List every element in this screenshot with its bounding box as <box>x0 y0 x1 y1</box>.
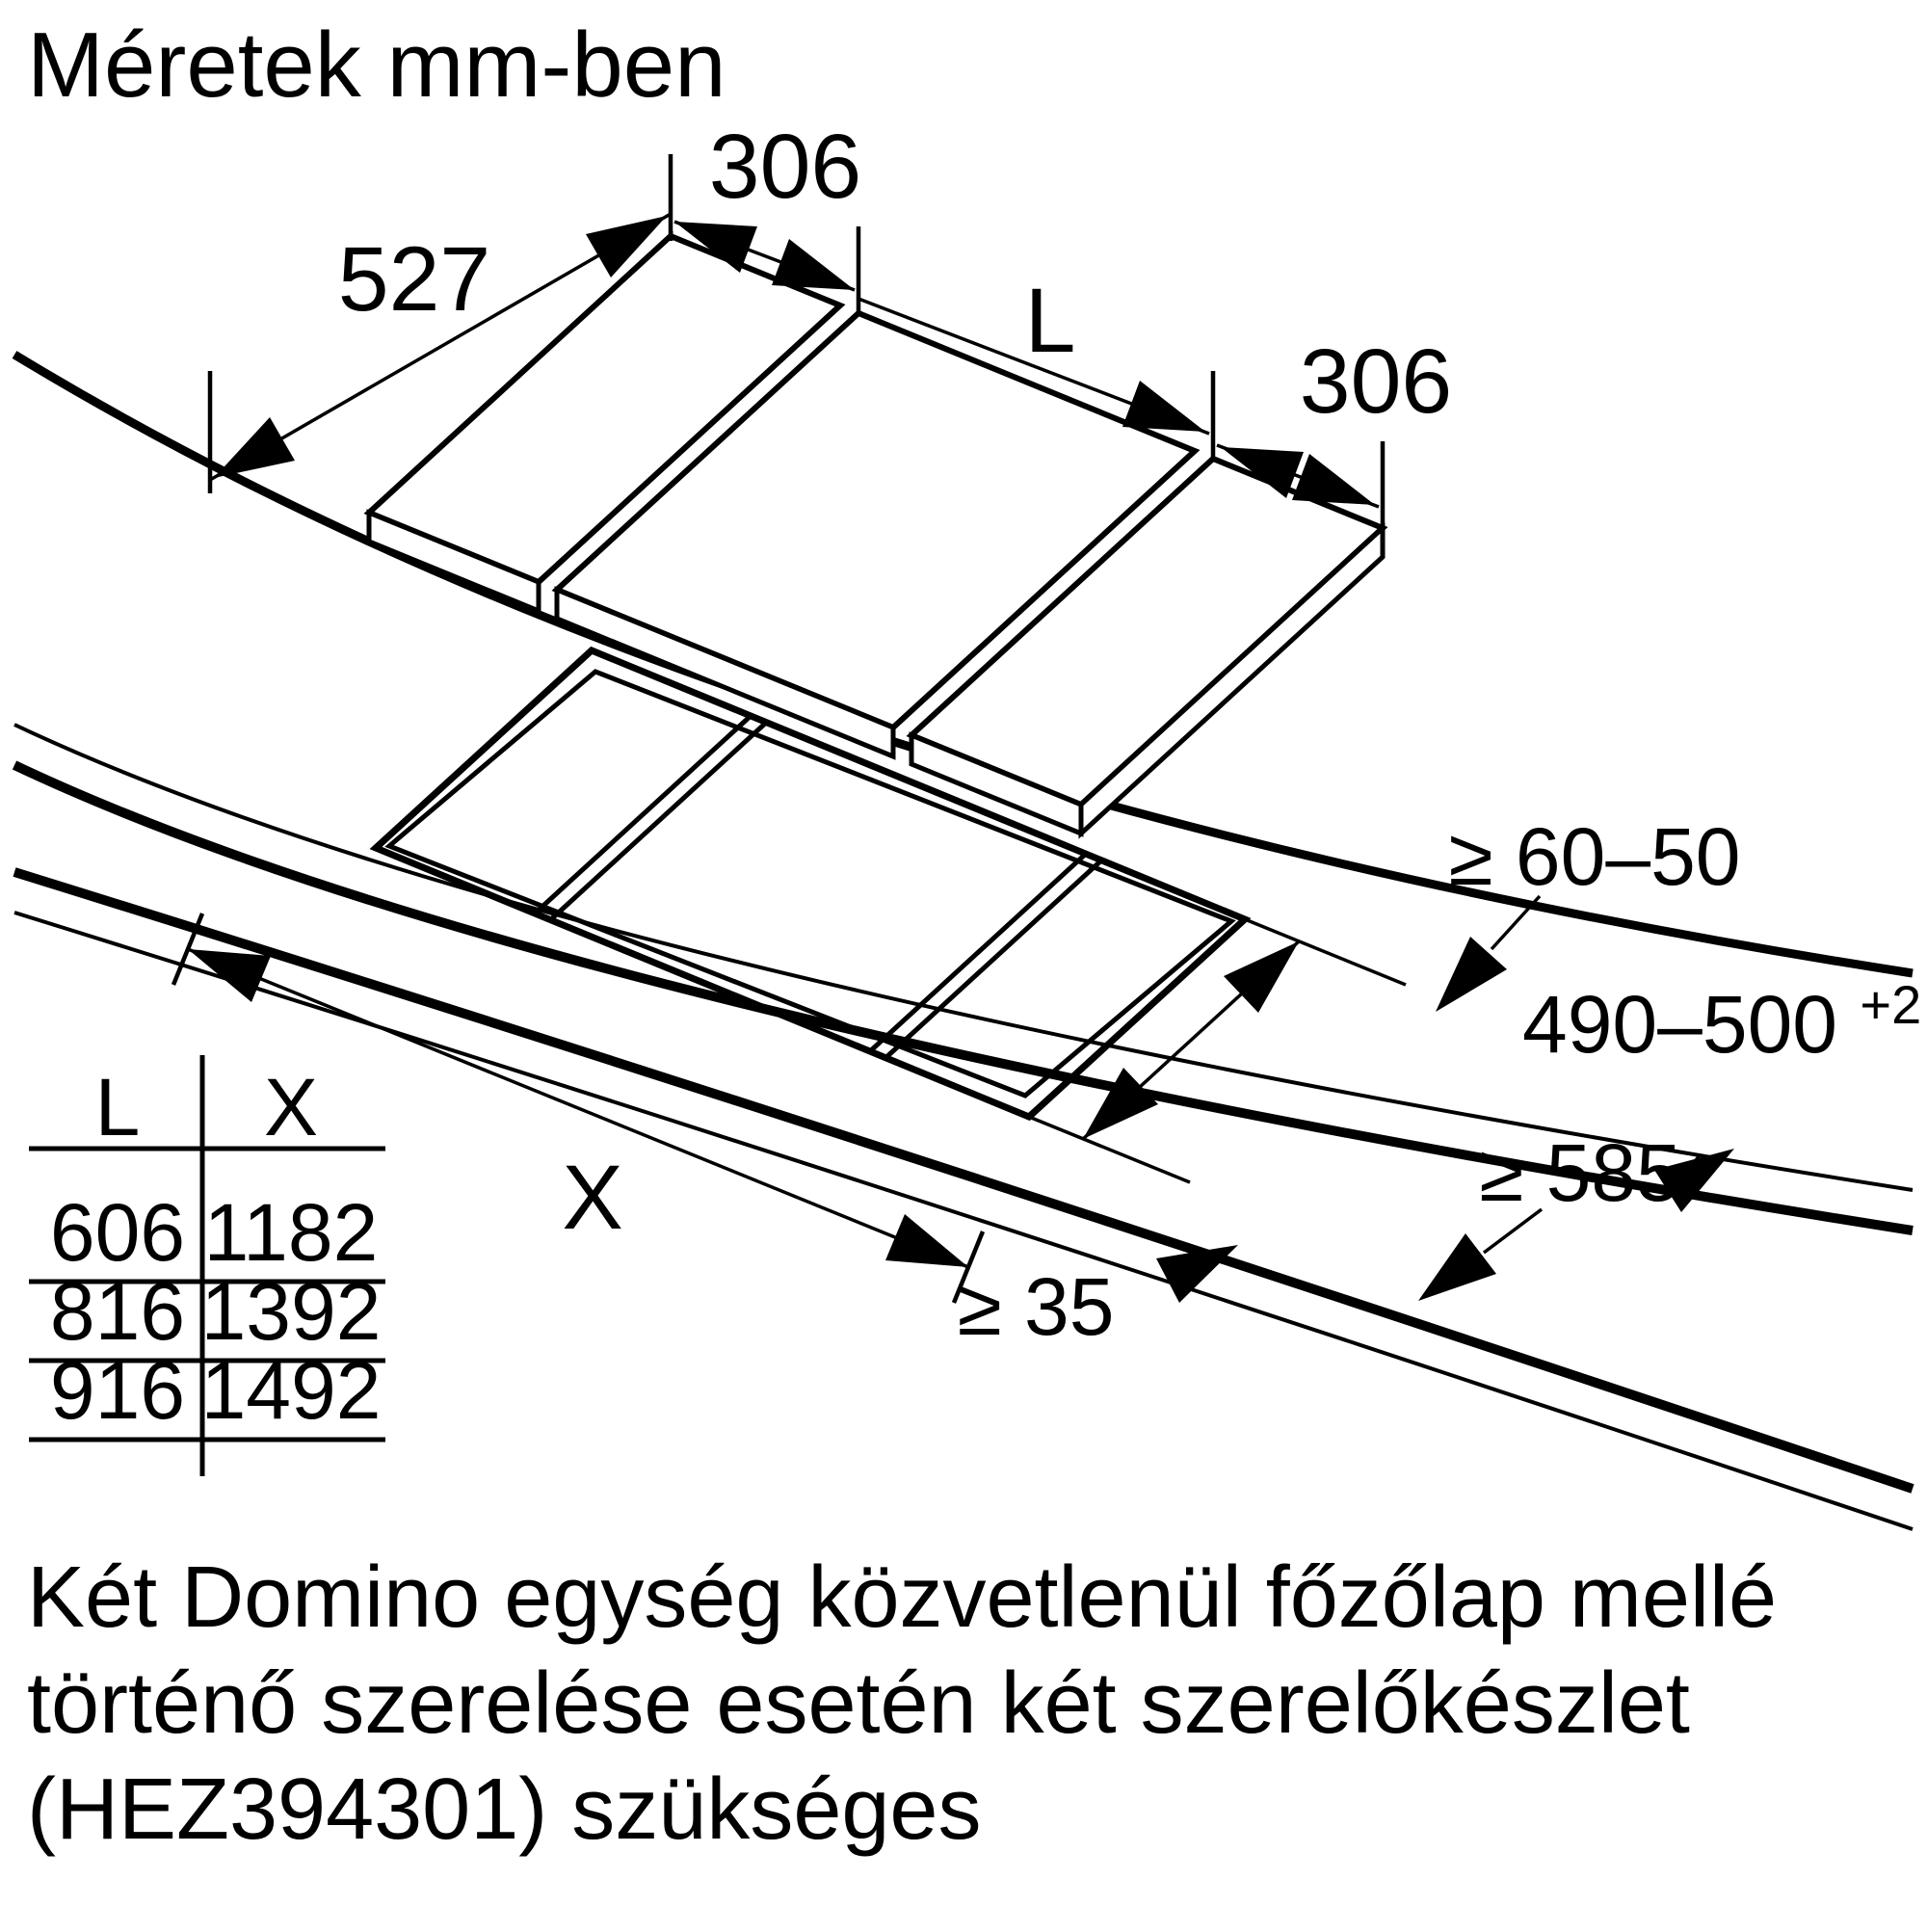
installation-note: Két Domino egység közvetlenül főzőlap me… <box>27 1549 1777 1858</box>
cutout-divider-left <box>535 716 766 920</box>
arrow-worktop-depth-down <box>1418 1233 1496 1301</box>
table-cell-x2: 1392 <box>201 1266 382 1357</box>
arrow-527-a <box>214 417 295 478</box>
dimension-table: L X 606 1182 816 1392 916 1492 <box>29 1055 385 1476</box>
rear-clearance-label: ≥ 60–50 <box>1448 811 1740 902</box>
installation-diagram: Méretek mm-ben 306 527 L 306 ≥ 60–50 490… <box>0 0 1927 1927</box>
table-cell-l3: 916 <box>50 1345 185 1436</box>
cutout-depth-tolerance: +2 <box>1860 974 1921 1035</box>
hob-assembly <box>369 236 1383 834</box>
dim-depth-label: 527 <box>338 228 491 331</box>
front-clearance-label: ≥ 35 <box>958 1261 1115 1352</box>
arrow-X-left <box>188 949 271 1002</box>
note-line-2: történő szerelése esetén két szerelőkész… <box>27 1655 1690 1752</box>
table-row: 916 1492 <box>50 1345 382 1436</box>
diagram-page: Méretek mm-ben 306 527 L 306 ≥ 60–50 490… <box>0 0 1927 1927</box>
table-cell-l2: 816 <box>50 1266 185 1357</box>
table-header-l: L <box>95 1062 141 1152</box>
note-line-1: Két Domino egység közvetlenül főzőlap me… <box>27 1549 1777 1646</box>
table-row: 816 1392 <box>50 1266 382 1357</box>
note-line-3: (HEZ394301) szükséges <box>27 1761 981 1858</box>
worktop-depth-label: ≥ 585 <box>1479 1127 1681 1218</box>
dim-right-width-label: 306 <box>1300 331 1453 433</box>
cutout-depth-label: 490–500 +2 <box>1522 974 1921 1070</box>
page-title: Méretek mm-ben <box>27 13 726 117</box>
cutout-divider-right <box>870 854 1101 1058</box>
table-cell-x3: 1492 <box>201 1345 382 1436</box>
arrow-L-right <box>1122 381 1205 432</box>
table-row: 606 1182 <box>50 1187 378 1278</box>
cutout-length-label: X <box>562 1147 622 1249</box>
dim-length-label: L <box>1025 270 1076 372</box>
table-cell-x1: 1182 <box>204 1187 379 1278</box>
arrow-front-clearance <box>1156 1245 1238 1303</box>
arrow-X-right <box>885 1214 968 1267</box>
table-header-x: X <box>264 1062 318 1152</box>
table-cell-l1: 606 <box>50 1187 185 1278</box>
arrow-306-left-b <box>772 239 855 290</box>
arrow-rear-clearance <box>1436 937 1507 1012</box>
cutout-depth-value: 490–500 <box>1522 979 1837 1070</box>
dim-left-width-label: 306 <box>709 116 862 218</box>
arrow-306-right-b <box>1292 454 1375 505</box>
